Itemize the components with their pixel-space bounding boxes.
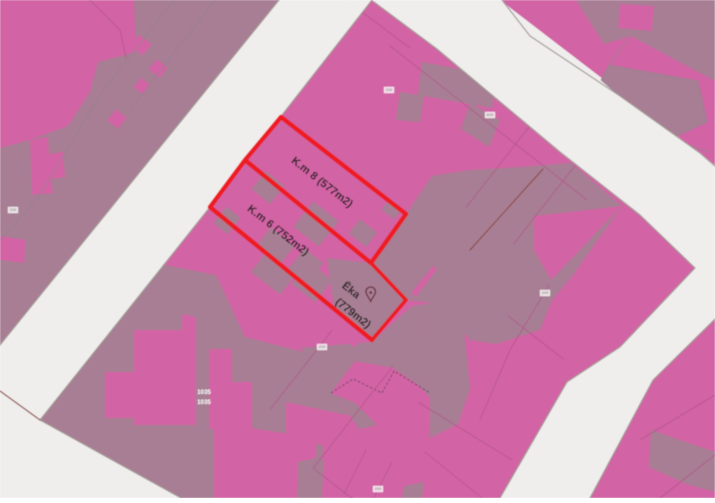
svg-text:200: 200	[542, 290, 549, 295]
svg-text:200: 200	[386, 87, 393, 92]
svg-text:835: 835	[487, 112, 494, 117]
svg-text:1035: 1035	[197, 399, 211, 406]
svg-text:200: 200	[319, 344, 326, 349]
svg-text:1035: 1035	[197, 389, 211, 396]
svg-text:200: 200	[10, 207, 17, 212]
svg-text:200: 200	[375, 486, 382, 491]
